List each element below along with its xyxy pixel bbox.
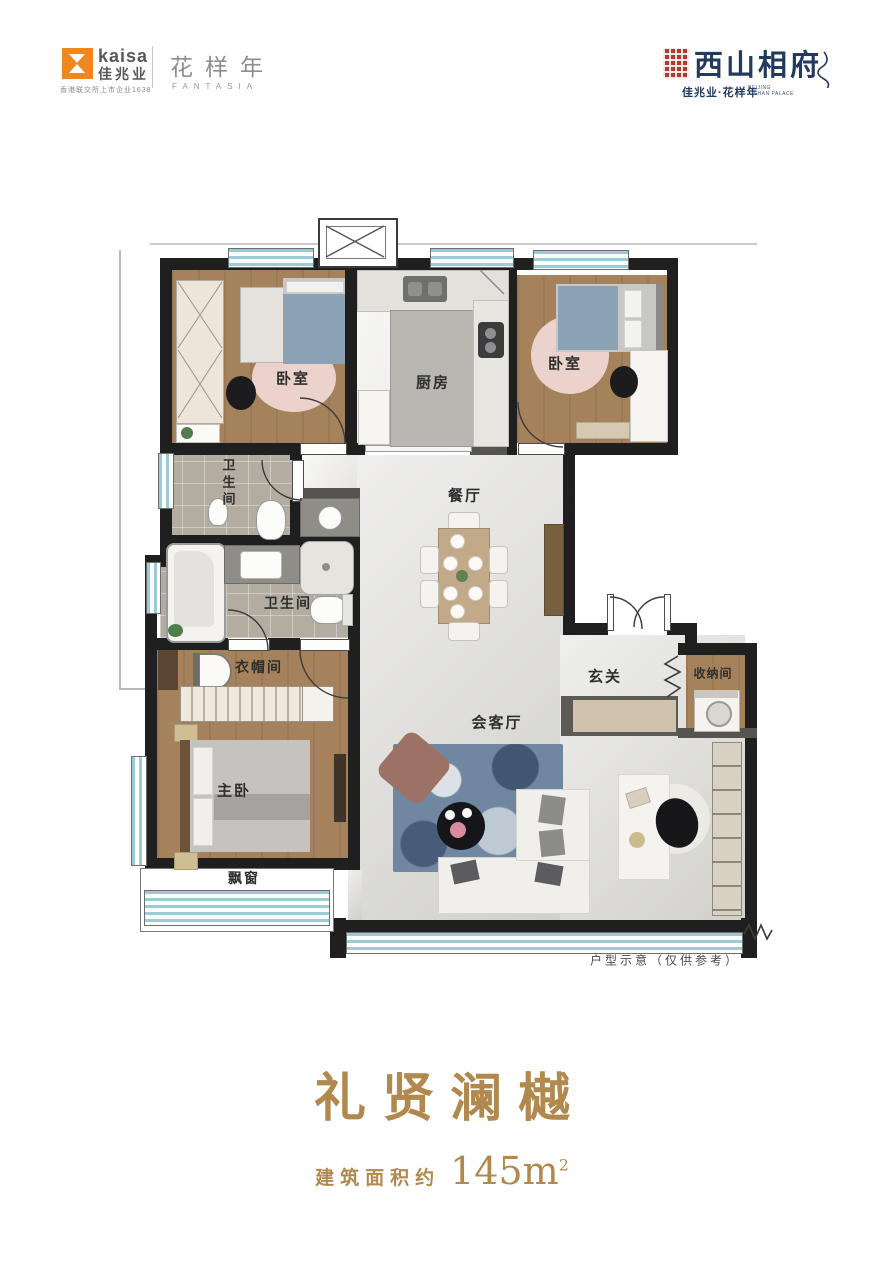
kitchen-cabinet-left <box>358 390 390 445</box>
kitchen-sink-bowl-left <box>408 282 422 296</box>
wall-cloak-top-2 <box>268 638 300 650</box>
wall-left-upper <box>160 258 172 563</box>
window-bedroom1 <box>228 248 314 268</box>
window-kitchen <box>430 248 514 268</box>
wall-niche-top <box>298 488 360 498</box>
window-bedroom2 <box>533 250 629 270</box>
cloakroom-cabinet <box>158 650 178 690</box>
bath2-vanity-sink <box>240 551 282 579</box>
label-living: 会客厅 <box>471 712 522 733</box>
bedroom1-wardrobe <box>176 280 224 424</box>
bedroom2-desk <box>630 350 668 442</box>
master-bed-headboard <box>180 740 190 852</box>
corridor-floor <box>302 455 360 488</box>
label-bath1: 卫生间 <box>219 458 238 509</box>
dining-sideboard <box>544 524 564 616</box>
dining-chair-left-1 <box>420 546 439 574</box>
label-master: 主卧 <box>217 780 251 801</box>
bedroom1-bed-blanket <box>283 294 345 364</box>
living-coffee-cup-1 <box>445 810 455 820</box>
entry-door-leaf-left <box>607 594 614 631</box>
window-left-bath <box>146 562 161 614</box>
dining-plate-5 <box>468 586 483 601</box>
living-desk-bowl <box>629 832 645 848</box>
poster-title: 礼贤澜樾 <box>0 1056 884 1131</box>
window-left-master <box>131 756 147 866</box>
dining-chair-left-2 <box>420 580 439 608</box>
wall-bedroom1-bottom <box>160 443 300 455</box>
dining-plate-2 <box>443 556 458 571</box>
bath2-plant <box>168 624 183 637</box>
living-coffee-flowers <box>450 822 466 838</box>
wall-master-right <box>348 650 360 870</box>
washing-machine-drum <box>706 701 732 727</box>
label-foyer: 玄关 <box>588 666 622 687</box>
living-coffee-cup-2 <box>462 808 472 818</box>
wall-bottom <box>330 920 757 932</box>
label-bay-window: 飘窗 <box>228 868 260 888</box>
bedroom2-chair <box>610 366 638 398</box>
label-bath2: 卫生间 <box>264 593 312 613</box>
bedroom2-bench <box>576 422 630 439</box>
bedroom2-bed-blanket <box>558 286 618 350</box>
bath1-door-leaf <box>292 460 304 502</box>
bay-window-glass-left <box>144 890 330 926</box>
dining-chair-right-1 <box>489 546 508 574</box>
sill-line <box>150 243 757 245</box>
label-bedroom2: 卧室 <box>548 353 582 374</box>
kitchen-burner-1 <box>485 328 496 339</box>
bedroom1-bed-pillow <box>286 281 344 293</box>
label-dining: 餐厅 <box>448 485 482 506</box>
master-nightstand-bottom <box>174 852 198 870</box>
dining-plate-6 <box>450 604 465 619</box>
bath2-bathtub-inner <box>174 551 214 627</box>
dining-chair-bottom <box>448 622 480 641</box>
bedroom1-chair <box>226 376 256 410</box>
label-storage: 收纳间 <box>693 665 732 682</box>
dining-plant <box>456 570 468 582</box>
living-sofa-cushion-1 <box>538 794 566 825</box>
living-sofa-cushion-2 <box>539 829 566 857</box>
window-left-upper <box>158 453 174 509</box>
wall-mid-vertical <box>563 443 575 635</box>
plan-note: 户型示意（仅供参考） <box>590 952 740 969</box>
label-kitchen: 厨房 <box>416 372 450 393</box>
label-bedroom1: 卧室 <box>276 368 310 389</box>
property-line <box>119 250 121 690</box>
bath2-door-leaf <box>228 639 270 651</box>
bath2-shower-drain <box>322 563 330 571</box>
door-arc-entry-left <box>610 597 642 629</box>
living-bookshelf <box>712 742 742 916</box>
dining-plate-3 <box>468 556 483 571</box>
dining-chair-right-2 <box>489 580 508 608</box>
poster: kaisa 佳兆业 香港联交所上市企业1638 花样年 FANTASIA 西山相… <box>0 0 884 1280</box>
property-line <box>119 688 146 690</box>
label-cloakroom: 衣帽间 <box>235 657 283 677</box>
footer: 礼贤澜樾 建筑面积约 145m2 <box>0 1056 884 1193</box>
bath2-toilet <box>310 596 346 624</box>
cloakroom-wardrobe-shelf <box>302 686 334 722</box>
master-pillow-1 <box>193 747 213 795</box>
wall-bedroom2-bottom <box>563 443 678 455</box>
kitchen-sink-bowl-right <box>428 282 442 296</box>
master-tv-console <box>334 754 346 822</box>
cloakroom-door-leaf <box>300 639 350 651</box>
bath2-toilet-tank <box>342 594 353 626</box>
wall-div-bed1-kitchen <box>345 258 357 455</box>
bedroom2-pillow-2 <box>624 320 642 348</box>
dining-plate-4 <box>443 586 458 601</box>
foyer-bench <box>573 700 676 732</box>
wall-entry-left <box>563 623 608 635</box>
niche-sink-bowl <box>318 506 342 530</box>
living-corner-floor <box>348 870 362 920</box>
bedroom1-door-leaf <box>300 443 347 455</box>
wall-bedroom2-right <box>667 258 678 455</box>
wall-bottom-stub-right <box>741 918 757 958</box>
wall-right-lower <box>745 643 757 940</box>
door-arc-entry-right <box>634 597 664 627</box>
entry-door-leaf-right <box>664 594 671 631</box>
bedroom1-plant <box>181 427 193 439</box>
area-superscript: 2 <box>559 1155 569 1174</box>
living-sofa-cushion-4 <box>534 862 563 886</box>
bedroom1-desk <box>240 287 285 363</box>
area-number: 145m2 <box>450 1149 569 1193</box>
cloakroom-vanity <box>198 653 232 690</box>
master-pillow-2 <box>193 798 213 846</box>
area-line: 建筑面积约 145m2 <box>0 1149 884 1193</box>
cloakroom-vanity-bar <box>193 653 199 686</box>
kitchen-burner-2 <box>485 342 496 353</box>
bath1-toilet <box>256 500 286 540</box>
area-prefix: 建筑面积约 <box>315 1163 440 1190</box>
bedroom2-pillow-1 <box>624 290 642 318</box>
elevator-shaft-inner <box>326 226 386 259</box>
dining-plate-1 <box>450 534 465 549</box>
bedroom2-headboard <box>656 284 664 352</box>
washing-machine-panel <box>694 690 738 698</box>
bedroom2-door-leaf <box>518 443 565 455</box>
